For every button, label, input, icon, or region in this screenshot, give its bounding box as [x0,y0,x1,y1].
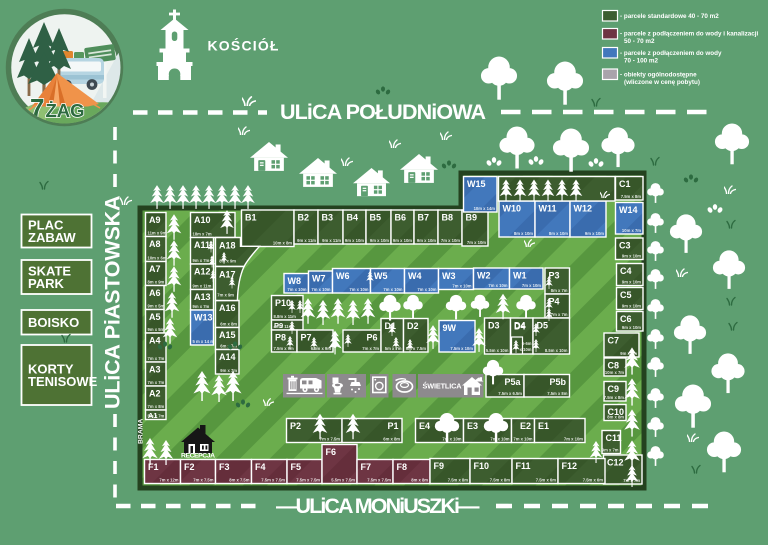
svg-text:P8: P8 [275,333,286,343]
svg-text:7m x 10m: 7m x 10m [513,436,532,441]
svg-text:9m x 10m: 9m x 10m [393,238,412,243]
svg-text:B7: B7 [418,213,430,223]
svg-text:A6: A6 [149,288,161,298]
svg-text:W2: W2 [477,271,491,281]
svg-text:7m x 10m: 7m x 10m [452,283,471,288]
svg-text:- parcele standardowe 40 - 70: - parcele standardowe 40 - 70 m2 [620,13,719,20]
svg-text:P1: P1 [387,421,398,431]
svg-text:C9: C9 [608,384,620,394]
svg-text:10m x 7m: 10m x 7m [622,228,641,233]
svg-text:7.5m x 10m: 7.5m x 10m [450,346,473,351]
svg-text:BOISKO: BOISKO [28,315,79,330]
svg-text:7m x 7m: 7m x 7m [148,380,165,385]
svg-text:8m x 7.5m: 8m x 7.5m [229,477,250,482]
svg-text:W5: W5 [374,271,388,281]
svg-text:10m x 8m: 10m x 8m [273,240,292,245]
svg-text:5m x 7m: 5m x 7m [148,413,165,418]
svg-text:C1: C1 [619,179,631,189]
svg-text:B4: B4 [347,213,359,223]
svg-text:7m x 12m: 7m x 12m [159,477,178,482]
svg-text:7m x 10m: 7m x 10m [488,283,507,288]
svg-text:7.5m x 8m: 7.5m x 8m [490,477,511,482]
svg-text:A4: A4 [149,336,161,346]
svg-text:C3: C3 [619,241,631,251]
svg-text:W7: W7 [312,274,326,284]
svg-text:F12: F12 [562,461,578,471]
svg-text:7m x 10m: 7m x 10m [441,238,460,243]
svg-text:- parcele z podłączeniem do wo: - parcele z podłączeniem do wody [620,50,722,57]
svg-text:7m x 10m: 7m x 10m [383,287,402,292]
svg-text:D4: D4 [514,322,526,332]
svg-text:A8: A8 [149,239,161,249]
svg-text:E3: E3 [467,421,478,431]
svg-text:5.5m x 10m: 5.5m x 10m [486,348,509,353]
svg-text:7.5m x 8m: 7.5m x 8m [547,391,568,396]
svg-text:A3: A3 [149,365,161,375]
svg-text:7m x 10m: 7m x 10m [442,436,461,441]
svg-text:B3: B3 [322,213,334,223]
svg-text:9m x 7m: 9m x 7m [193,304,210,309]
svg-text:C6: C6 [620,314,632,324]
svg-text:8m x 9m: 8m x 9m [219,259,236,264]
svg-text:W4: W4 [408,271,422,281]
svg-text:A13: A13 [194,292,211,302]
svg-text:W6: W6 [336,271,350,281]
svg-text:P5a: P5a [504,377,521,387]
svg-text:10m x 7m: 10m x 7m [605,370,624,375]
svg-text:7.5m x 7.5m: 7.5m x 7.5m [296,477,320,482]
svg-text:7m x 8m: 7m x 8m [148,404,165,409]
svg-text:D3: D3 [488,321,500,331]
svg-text:9m x 10m: 9m x 10m [622,325,641,330]
svg-text:9m x 10m: 9m x 10m [417,238,436,243]
svg-text:P10: P10 [275,298,291,308]
svg-text:F8: F8 [397,462,408,472]
svg-text:70 - 100 m2: 70 - 100 m2 [624,58,658,65]
svg-text:7m x 10m: 7m x 10m [564,436,583,441]
svg-text:8m x 8m: 8m x 8m [411,477,428,482]
svg-text:7.5m x 6m: 7.5m x 6m [583,477,604,482]
svg-text:10m x 6m: 10m x 6m [148,255,167,260]
svg-text:8.5m x 10m: 8.5m x 10m [545,348,568,353]
svg-text:- parcele z podłączeniem do wo: - parcele z podłączeniem do wody i kanal… [620,31,758,38]
svg-text:F5: F5 [291,462,302,472]
svg-text:A7: A7 [149,264,161,274]
svg-text:ZABAW: ZABAW [28,230,76,245]
svg-text:7m x 10m: 7m x 10m [287,287,306,292]
svg-text:9m x 7m: 9m x 7m [193,258,210,263]
svg-text:ULiCA PiASTOWSKA: ULiCA PiASTOWSKA [101,195,125,409]
svg-text:W3: W3 [442,271,456,281]
svg-text:8m x 7m: 8m x 7m [551,288,568,293]
svg-text:B6: B6 [395,213,407,223]
svg-text:F10: F10 [474,461,490,471]
svg-text:6m x 8m: 6m x 8m [220,321,237,326]
svg-text:RECEPCJA: RECEPCJA [181,453,215,460]
svg-text:10m x 14m: 10m x 14m [474,206,496,211]
svg-text:W1: W1 [513,271,527,281]
svg-text:A14: A14 [219,352,236,362]
svg-text:6m x 8m: 6m x 8m [383,436,400,441]
svg-text:7m x 7m: 7m x 7m [148,356,165,361]
svg-text:W10: W10 [503,204,522,214]
svg-text:TENISOWE: TENISOWE [28,374,98,389]
svg-text:A11: A11 [194,240,210,250]
svg-text:9m x 5m: 9m x 5m [148,303,165,308]
svg-text:9m x 5m: 9m x 5m [148,327,165,332]
svg-text:9m x 10m: 9m x 10m [622,253,641,258]
svg-text:7.5m x 6m: 7.5m x 6m [536,477,557,482]
svg-text:7m x 7m: 7m x 7m [362,346,379,351]
svg-text:7m x 7m: 7m x 7m [551,312,568,317]
svg-text:A12: A12 [194,267,211,277]
svg-text:ŚWIETLICA: ŚWIETLICA [423,382,463,391]
svg-text:A17: A17 [219,270,236,280]
svg-text:7m x 7.5m: 7m x 7.5m [193,477,214,482]
svg-text:11m x 9m: 11m x 9m [148,230,167,235]
svg-text:A18: A18 [219,241,236,251]
svg-text:8m x 10m: 8m x 10m [549,231,568,236]
svg-text:PARK: PARK [28,276,64,291]
svg-text:18m x 7m: 18m x 7m [193,231,212,236]
svg-text:W12: W12 [574,204,593,214]
svg-text:B1: B1 [245,213,257,223]
svg-text:7m x 10m: 7m x 10m [467,240,486,245]
svg-text:A10: A10 [194,215,211,225]
svg-text:A16: A16 [219,303,236,313]
svg-text:KOŚCIÓŁ: KOŚCIÓŁ [208,37,280,54]
svg-text:A15: A15 [219,330,236,340]
svg-text:7.5m x 8m: 7.5m x 8m [604,395,625,400]
svg-text:7.5m x 7.5m: 7.5m x 7.5m [367,477,391,482]
svg-text:9m x 11m: 9m x 11m [322,238,341,243]
svg-text:9m x 10m: 9m x 10m [370,238,389,243]
svg-text:E2: E2 [520,421,531,431]
svg-text:8m x 9m: 8m x 9m [148,279,165,284]
svg-text:7m x 7.5m: 7m x 7.5m [320,436,341,441]
svg-text:C12: C12 [607,458,624,468]
svg-text:W15: W15 [467,179,486,189]
svg-text:C5: C5 [620,290,632,300]
svg-text:F7: F7 [361,462,372,472]
svg-text:ŻAG: ŻAG [46,100,85,121]
svg-text:7.5m x 8m: 7.5m x 8m [621,194,642,199]
svg-text:7.5m x 9m: 7.5m x 9m [274,346,295,351]
svg-text:7m x 9m: 7m x 9m [217,293,234,298]
svg-text:9m x 7m: 9m x 7m [220,368,237,373]
svg-text:C4: C4 [620,266,632,276]
svg-text:F6: F6 [326,447,337,457]
svg-text:D2: D2 [407,321,419,331]
svg-text:- obiekty ogólnodostępne: - obiekty ogólnodostępne [620,72,697,79]
svg-text:9m x 10m: 9m x 10m [585,231,604,236]
svg-text:F9: F9 [434,461,445,471]
svg-text:F4: F4 [255,462,266,472]
svg-text:5.5m x 7.5m: 5.5m x 7.5m [331,477,355,482]
svg-text:x 10m: x 10m [520,347,532,352]
svg-text:50 - 70 m2: 50 - 70 m2 [624,38,655,45]
svg-text:B9: B9 [466,213,478,223]
svg-text:8.8m x 11m: 8.8m x 11m [274,314,297,319]
svg-text:(wliczone w cenę pobytu): (wliczone w cenę pobytu) [624,79,700,86]
svg-text:7m x 10m: 7m x 10m [522,283,541,288]
svg-text:7m x 10m: 7m x 10m [490,436,509,441]
svg-text:9m x 10m: 9m x 10m [622,279,641,284]
svg-text:P5b: P5b [549,377,566,387]
svg-text:E1: E1 [538,421,549,431]
svg-text:B8: B8 [442,213,454,223]
svg-text:C7: C7 [608,336,620,346]
svg-text:B2: B2 [298,213,310,223]
svg-text:9m x 10m: 9m x 10m [345,238,364,243]
svg-text:P7: P7 [301,333,312,343]
svg-text:B5: B5 [370,213,382,223]
svg-text:7.5m x 7.5m: 7.5m x 7.5m [261,477,285,482]
svg-text:P2: P2 [290,421,301,431]
svg-text:8m x 10m: 8m x 10m [514,231,533,236]
svg-text:W11: W11 [539,204,557,214]
svg-text:6-6m: 6-6m [522,341,532,346]
svg-text:F3: F3 [219,462,230,472]
svg-text:5 m x 14 m: 5 m x 14 m [193,339,215,344]
svg-text:—ULiCA MONiUSZKi—: —ULiCA MONiUSZKi— [276,494,480,518]
svg-text:F11: F11 [516,461,531,471]
svg-text:W8: W8 [288,276,302,286]
svg-text:7m x 10m: 7m x 10m [417,287,436,292]
svg-text:F2: F2 [184,462,195,472]
svg-text:C11: C11 [606,433,622,443]
svg-text:W14: W14 [619,205,638,215]
svg-text:9m x 7m: 9m x 7m [602,447,619,452]
svg-text:7.5m x 6.5m: 7.5m x 6.5m [498,391,522,396]
svg-text:7m x 10m: 7m x 10m [311,287,330,292]
svg-text:ULiCA POŁUDNiOWA: ULiCA POŁUDNiOWA [280,100,487,124]
svg-text:E4: E4 [419,421,430,431]
svg-text:9m x 11m: 9m x 11m [297,238,316,243]
svg-text:8m x 8m: 8m x 8m [607,414,624,419]
svg-text:9W: 9W [443,323,457,333]
svg-text:A9: A9 [149,215,161,225]
svg-text:A2: A2 [149,389,161,399]
svg-text:9m x 11m: 9m x 11m [193,283,212,288]
svg-text:7.5m x 8m: 7.5m x 8m [448,477,469,482]
svg-text:W13: W13 [194,313,213,323]
svg-text:P3: P3 [549,271,560,281]
svg-text:9m x 10m: 9m x 10m [622,303,641,308]
svg-text:A5: A5 [149,312,161,322]
svg-text:P6: P6 [366,333,377,343]
svg-text:BRAMA: BRAMA [138,419,145,444]
svg-text:7m x 10m: 7m x 10m [349,287,368,292]
